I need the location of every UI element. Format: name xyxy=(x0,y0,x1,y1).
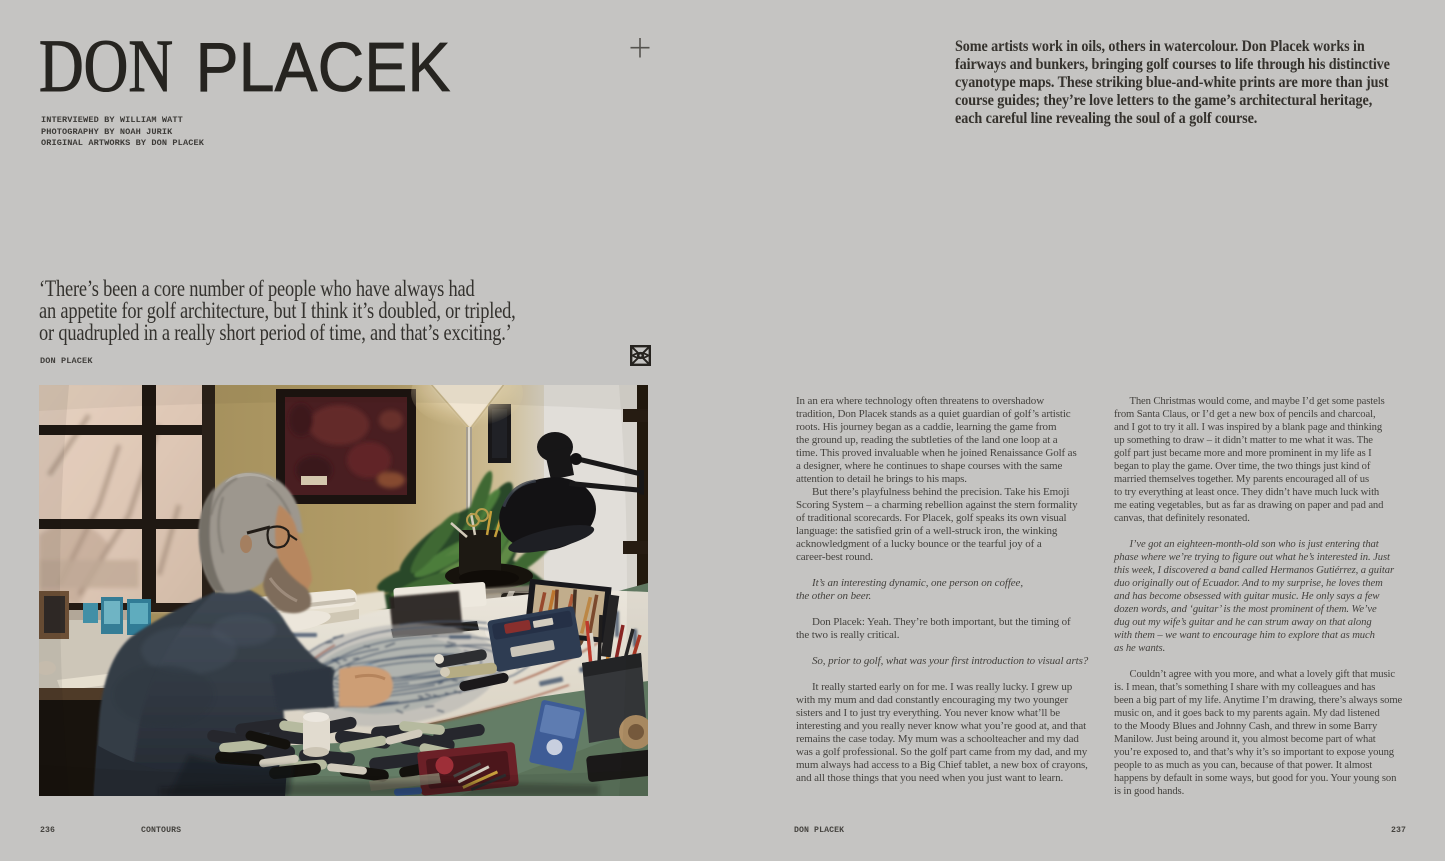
svg-text:PLACEK: PLACEK xyxy=(196,28,451,106)
svg-text:DON: DON xyxy=(39,25,173,108)
